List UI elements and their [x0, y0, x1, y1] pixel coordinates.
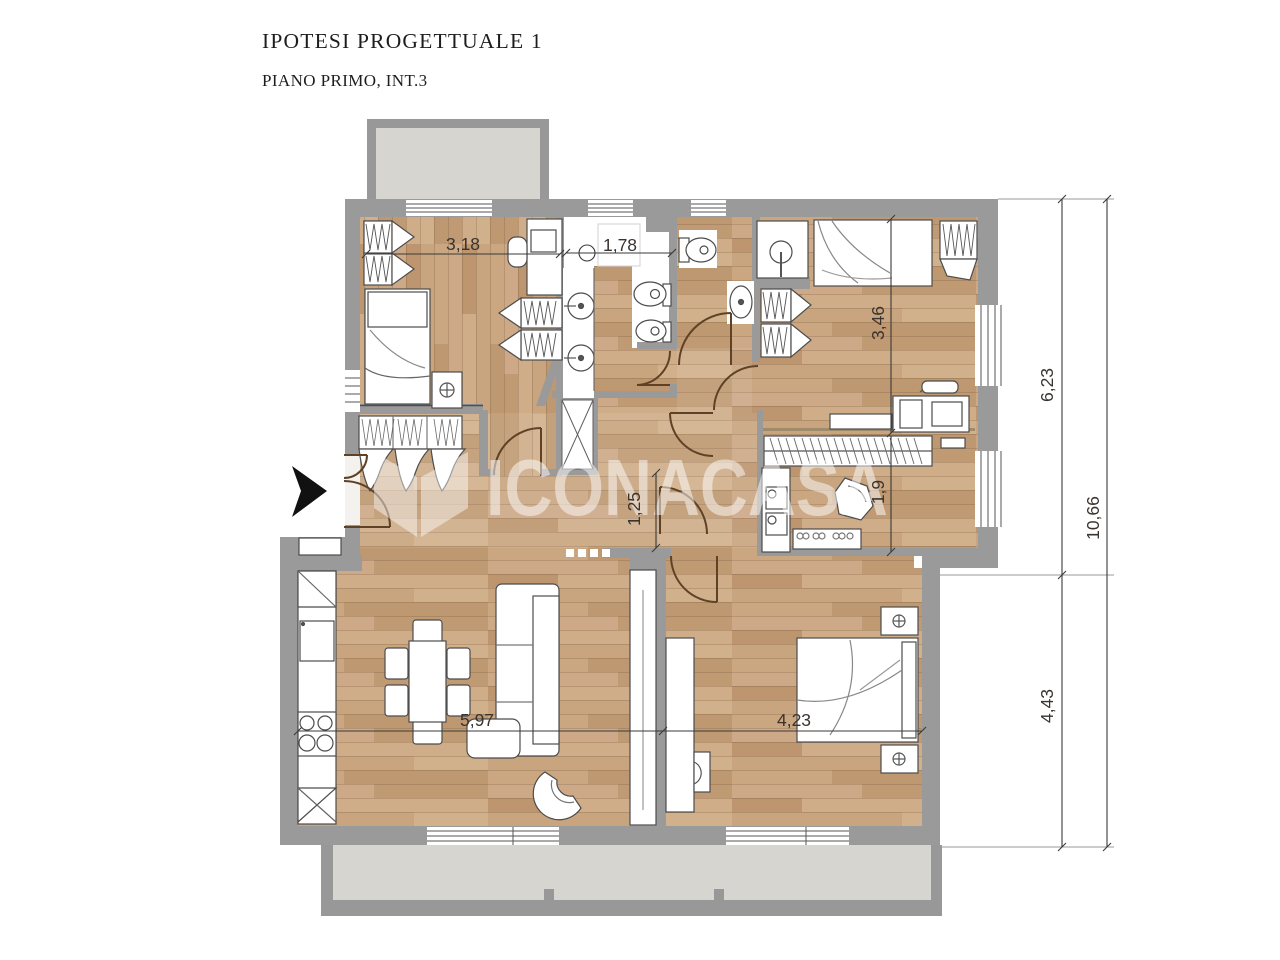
svg-text:ICONACASA: ICONACASA — [486, 443, 888, 532]
svg-text:1,9: 1,9 — [868, 480, 888, 504]
svg-text:PIANO PRIMO, INT.3: PIANO PRIMO, INT.3 — [262, 71, 428, 90]
svg-text:4,23: 4,23 — [777, 710, 811, 730]
svg-text:5,97: 5,97 — [460, 710, 494, 730]
svg-text:10,66: 10,66 — [1083, 496, 1103, 540]
svg-text:3,18: 3,18 — [446, 234, 480, 254]
svg-text:1,25: 1,25 — [624, 492, 644, 526]
svg-text:6,23: 6,23 — [1037, 368, 1057, 402]
svg-text:4,43: 4,43 — [1037, 689, 1057, 723]
svg-text:1,78: 1,78 — [603, 235, 637, 255]
svg-text:3,46: 3,46 — [868, 306, 888, 340]
svg-text:IPOTESI PROGETTUALE 1: IPOTESI PROGETTUALE 1 — [262, 29, 543, 53]
